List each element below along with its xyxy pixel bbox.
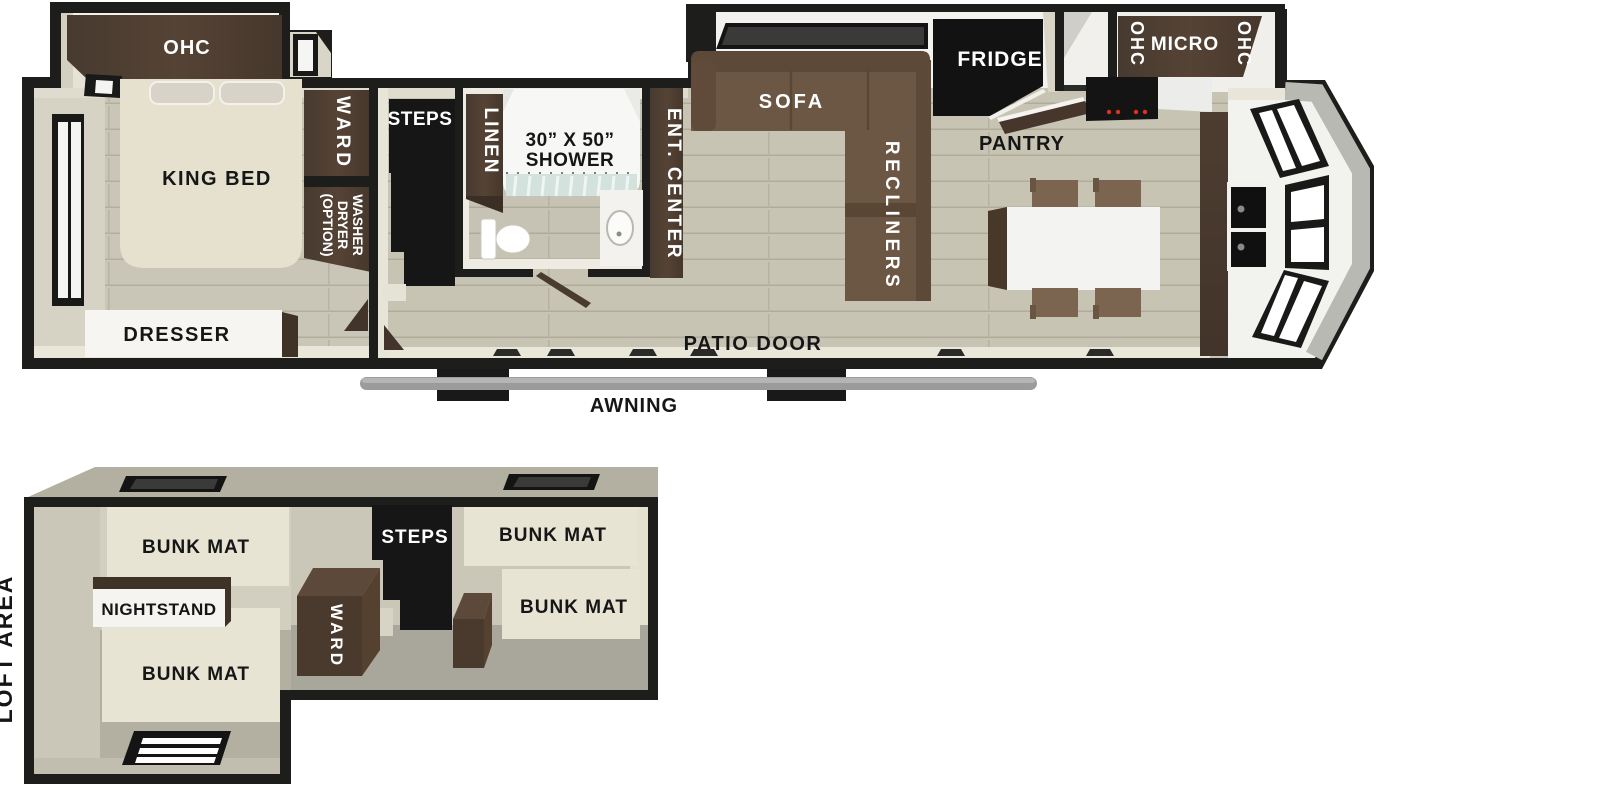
svg-text:OHC: OHC bbox=[1234, 21, 1254, 67]
svg-text:FRIDGE: FRIDGE bbox=[957, 48, 1042, 71]
svg-text:BUNK MAT: BUNK MAT bbox=[520, 597, 628, 618]
svg-text:WASHER: WASHER bbox=[350, 194, 366, 255]
svg-text:BUNK MAT: BUNK MAT bbox=[142, 664, 250, 685]
svg-text:WARD: WARD bbox=[327, 604, 346, 668]
svg-text:MICRO: MICRO bbox=[1151, 34, 1219, 55]
svg-text:LOFT AREA: LOFT AREA bbox=[0, 575, 17, 724]
svg-text:OHC: OHC bbox=[1127, 21, 1147, 67]
svg-text:DRESSER: DRESSER bbox=[123, 324, 230, 346]
svg-text:STEPS: STEPS bbox=[381, 527, 448, 548]
svg-text:ENT. CENTER: ENT. CENTER bbox=[663, 108, 684, 260]
svg-text:(OPTION): (OPTION) bbox=[320, 194, 336, 257]
svg-text:STEPS: STEPS bbox=[388, 109, 453, 130]
svg-text:LINEN: LINEN bbox=[480, 108, 501, 175]
svg-text:WARD: WARD bbox=[332, 96, 353, 170]
svg-text:BUNK MAT: BUNK MAT bbox=[499, 525, 607, 546]
svg-text:DRYER: DRYER bbox=[335, 201, 351, 250]
svg-text:SHOWER: SHOWER bbox=[526, 150, 615, 171]
svg-text:PANTRY: PANTRY bbox=[979, 133, 1065, 155]
svg-text:30” X 50”: 30” X 50” bbox=[526, 130, 615, 151]
svg-text:KING BED: KING BED bbox=[162, 168, 272, 190]
svg-text:BUNK MAT: BUNK MAT bbox=[142, 537, 250, 558]
svg-text:RECLINERS: RECLINERS bbox=[881, 141, 902, 291]
svg-text:SOFA: SOFA bbox=[759, 91, 825, 113]
svg-text:OHC: OHC bbox=[163, 37, 210, 59]
svg-text:AWNING: AWNING bbox=[590, 395, 678, 417]
svg-text:NIGHTSTAND: NIGHTSTAND bbox=[101, 600, 216, 619]
